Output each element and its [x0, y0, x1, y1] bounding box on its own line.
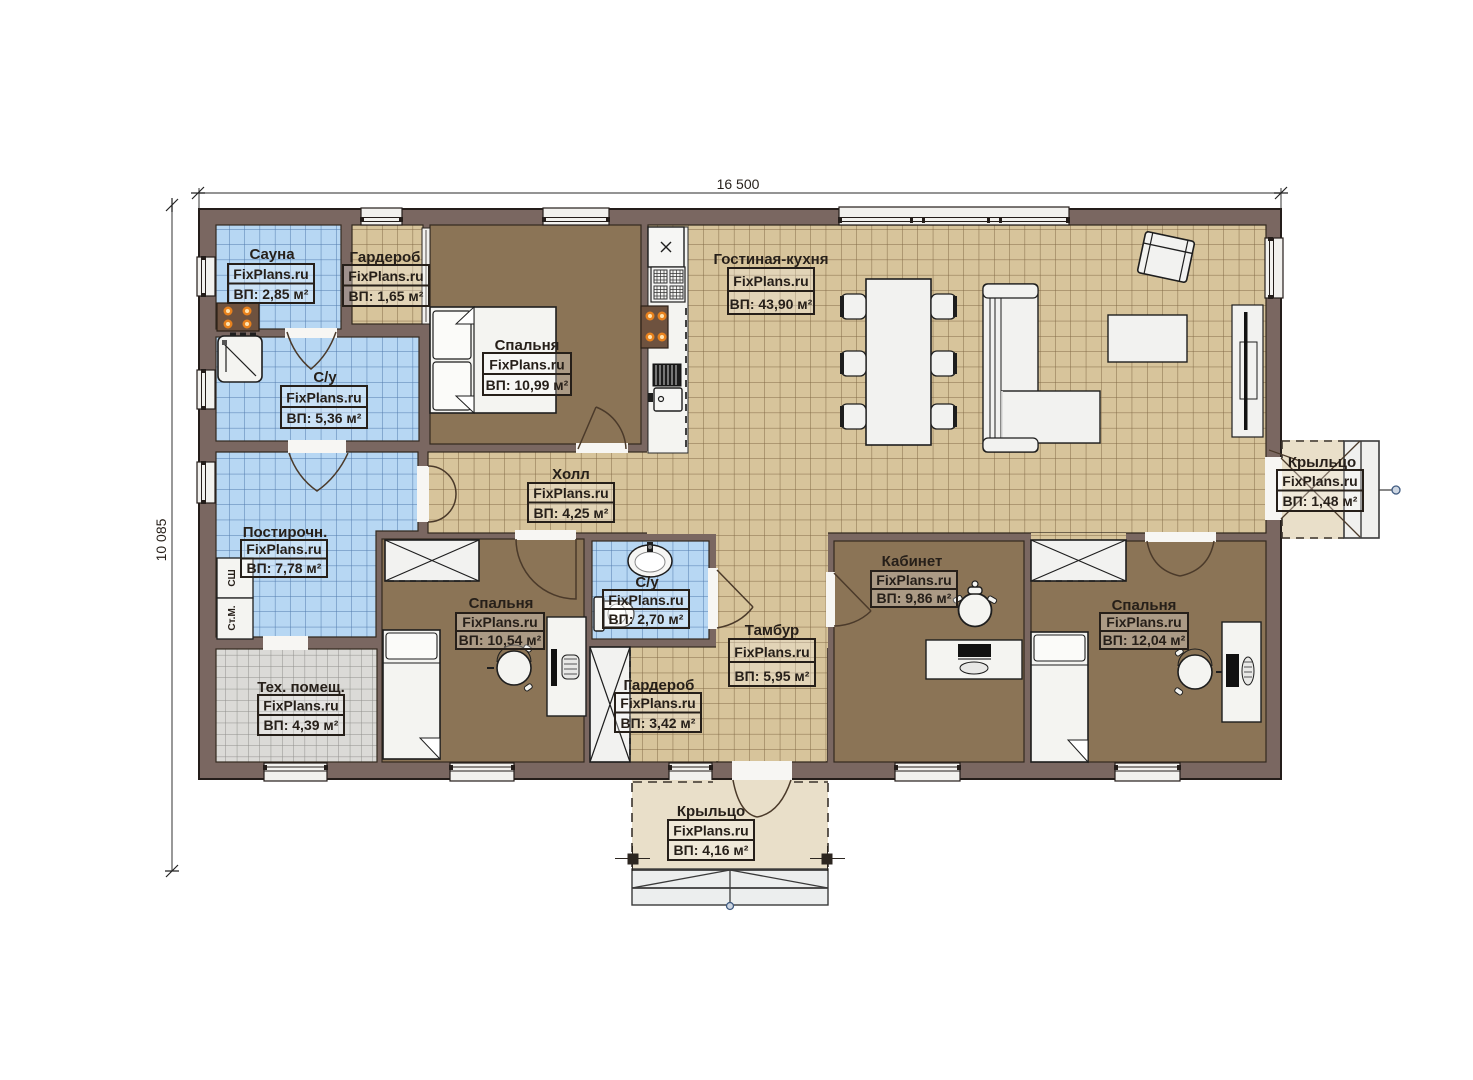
svg-text:Тамбур: Тамбур: [745, 622, 799, 639]
svg-text:Холл: Холл: [552, 466, 590, 483]
svg-text:Спальня: Спальня: [495, 337, 560, 354]
svg-text:ВП: 12,04 м²: ВП: 12,04 м²: [1103, 632, 1186, 648]
svg-text:ВП: 3,42 м²: ВП: 3,42 м²: [621, 715, 696, 731]
svg-text:ВП: 9,86 м²: ВП: 9,86 м²: [877, 590, 952, 606]
svg-text:Сауна: Сауна: [249, 246, 295, 263]
svg-text:Крыльцо: Крыльцо: [677, 803, 745, 820]
svg-text:ВП: 43,90 м²: ВП: 43,90 м²: [730, 296, 813, 312]
svg-text:ВП: 2,70 м²: ВП: 2,70 м²: [609, 611, 684, 627]
svg-text:FixPlans.ru: FixPlans.ru: [233, 266, 308, 282]
svg-text:Спальня: Спальня: [1112, 597, 1177, 614]
svg-text:С/у: С/у: [635, 574, 659, 591]
svg-text:ВП: 5,36 м²: ВП: 5,36 м²: [287, 410, 362, 426]
svg-text:ВП: 10,99 м²: ВП: 10,99 м²: [486, 377, 569, 393]
svg-text:Кабинет: Кабинет: [882, 553, 943, 570]
svg-text:Гардероб: Гардероб: [624, 677, 695, 694]
svg-text:16 500: 16 500: [717, 176, 760, 192]
svg-text:ВП: 4,25 м²: ВП: 4,25 м²: [534, 505, 609, 521]
svg-text:10 085: 10 085: [153, 518, 169, 561]
svg-text:FixPlans.ru: FixPlans.ru: [608, 592, 683, 608]
svg-text:Тех. помещ.: Тех. помещ.: [257, 679, 345, 696]
svg-text:FixPlans.ru: FixPlans.ru: [1282, 473, 1357, 489]
svg-text:FixPlans.ru: FixPlans.ru: [246, 541, 321, 557]
svg-text:Ст.М.: Ст.М.: [227, 605, 238, 630]
svg-text:FixPlans.ru: FixPlans.ru: [673, 823, 748, 839]
svg-text:ВП: 7,78 м²: ВП: 7,78 м²: [247, 560, 322, 576]
svg-text:FixPlans.ru: FixPlans.ru: [263, 698, 338, 714]
svg-text:FixPlans.ru: FixPlans.ru: [734, 644, 809, 660]
svg-text:Спальня: Спальня: [469, 595, 534, 612]
svg-text:FixPlans.ru: FixPlans.ru: [733, 273, 808, 289]
svg-text:ВП: 4,39 м²: ВП: 4,39 м²: [264, 717, 339, 733]
svg-text:Гостиная-кухня: Гостиная-кухня: [714, 251, 829, 268]
svg-text:ВП: 10,54 м²: ВП: 10,54 м²: [459, 632, 542, 648]
svg-text:FixPlans.ru: FixPlans.ru: [462, 614, 537, 630]
svg-text:Постирочн.: Постирочн.: [243, 524, 328, 541]
svg-text:ВП: 2,85 м²: ВП: 2,85 м²: [234, 286, 309, 302]
svg-text:FixPlans.ru: FixPlans.ru: [876, 572, 951, 588]
svg-text:FixPlans.ru: FixPlans.ru: [533, 485, 608, 501]
svg-text:FixPlans.ru: FixPlans.ru: [620, 695, 695, 711]
svg-text:FixPlans.ru: FixPlans.ru: [1106, 614, 1181, 630]
svg-text:СШ: СШ: [227, 569, 238, 586]
svg-text:FixPlans.ru: FixPlans.ru: [489, 357, 564, 373]
svg-text:FixPlans.ru: FixPlans.ru: [348, 268, 423, 284]
svg-text:С/у: С/у: [313, 369, 337, 386]
svg-text:ВП: 4,16 м²: ВП: 4,16 м²: [674, 842, 749, 858]
svg-text:Крыльцо: Крыльцо: [1288, 454, 1356, 471]
svg-text:FixPlans.ru: FixPlans.ru: [286, 390, 361, 406]
svg-text:ВП: 1,48 м²: ВП: 1,48 м²: [1283, 493, 1358, 509]
svg-text:ВП: 1,65 м²: ВП: 1,65 м²: [349, 288, 424, 304]
svg-text:ВП: 5,95 м²: ВП: 5,95 м²: [735, 668, 810, 684]
svg-text:Гардероб: Гардероб: [350, 249, 421, 266]
